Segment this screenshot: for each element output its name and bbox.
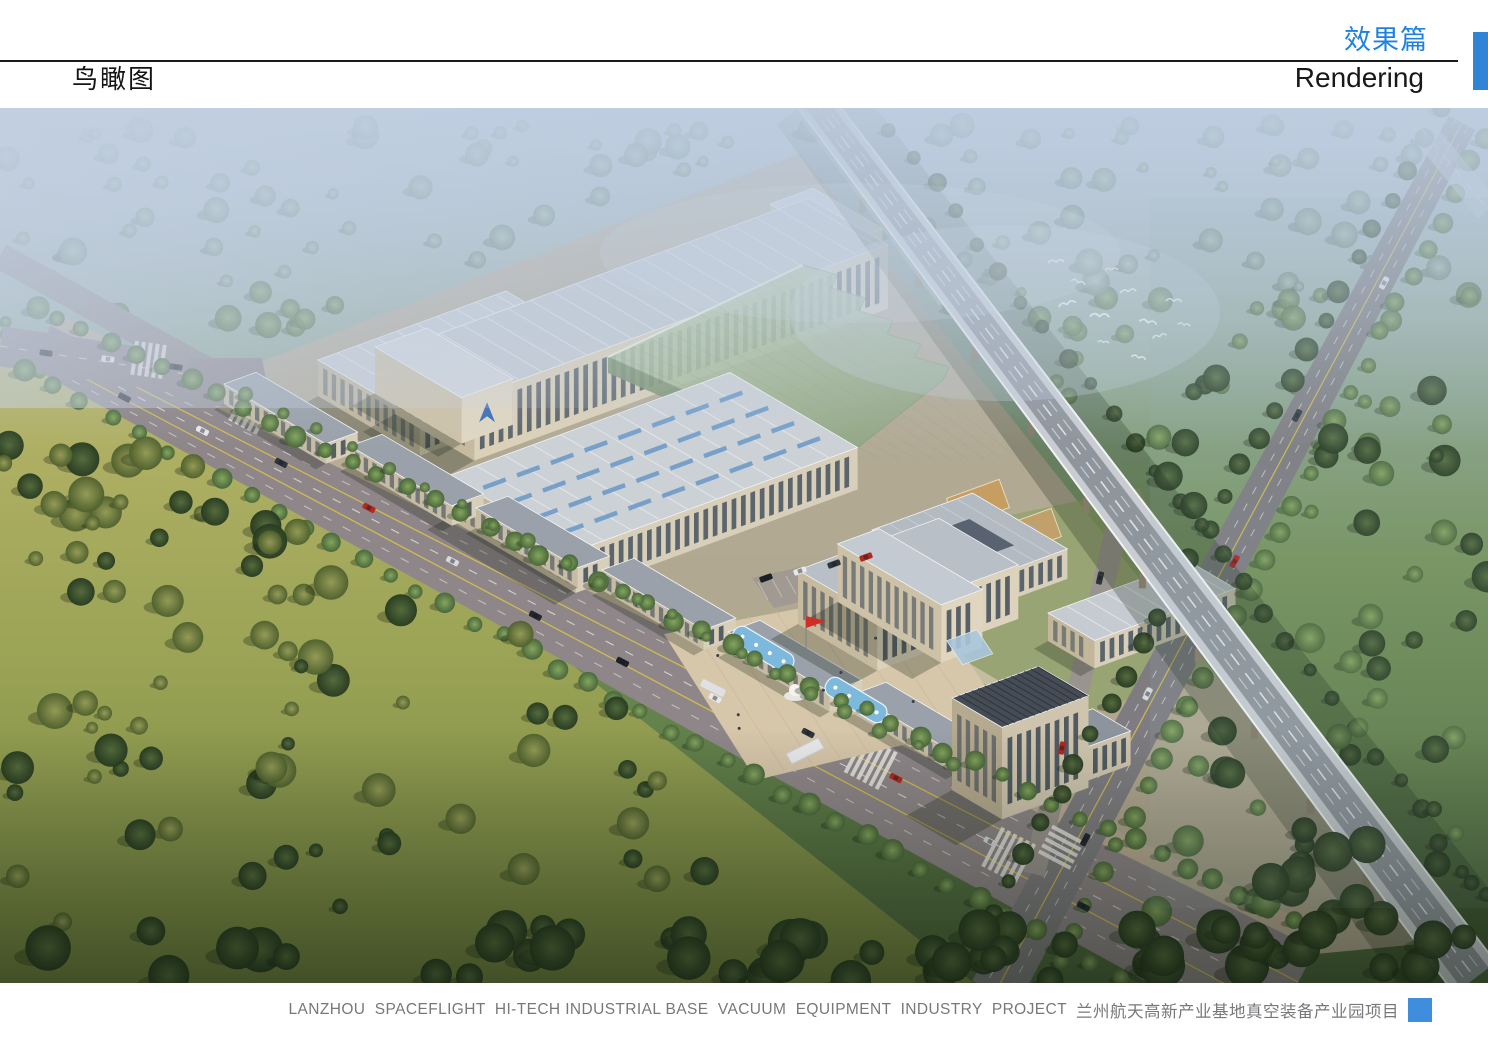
project-caption: LANZHOU SPACEFLIGHT HI-TECH INDUSTRIAL B… xyxy=(289,995,1432,1025)
aerial-rendering xyxy=(0,108,1488,983)
page-title: 鸟瞰图 xyxy=(72,64,156,94)
aerial-rendering-figure xyxy=(0,108,1488,983)
header-rule xyxy=(0,60,1458,62)
section-title-zh: 效果篇 xyxy=(1344,24,1428,56)
section-title-en: Rendering xyxy=(1295,62,1424,94)
caption-chinese: 兰州航天高新产业基地真空装备产业园项目 xyxy=(1076,998,1399,1022)
accent-block xyxy=(1473,32,1488,90)
caption-english: LANZHOU SPACEFLIGHT HI-TECH INDUSTRIAL B… xyxy=(289,1001,1067,1019)
caption-blue-marker xyxy=(1408,998,1432,1022)
